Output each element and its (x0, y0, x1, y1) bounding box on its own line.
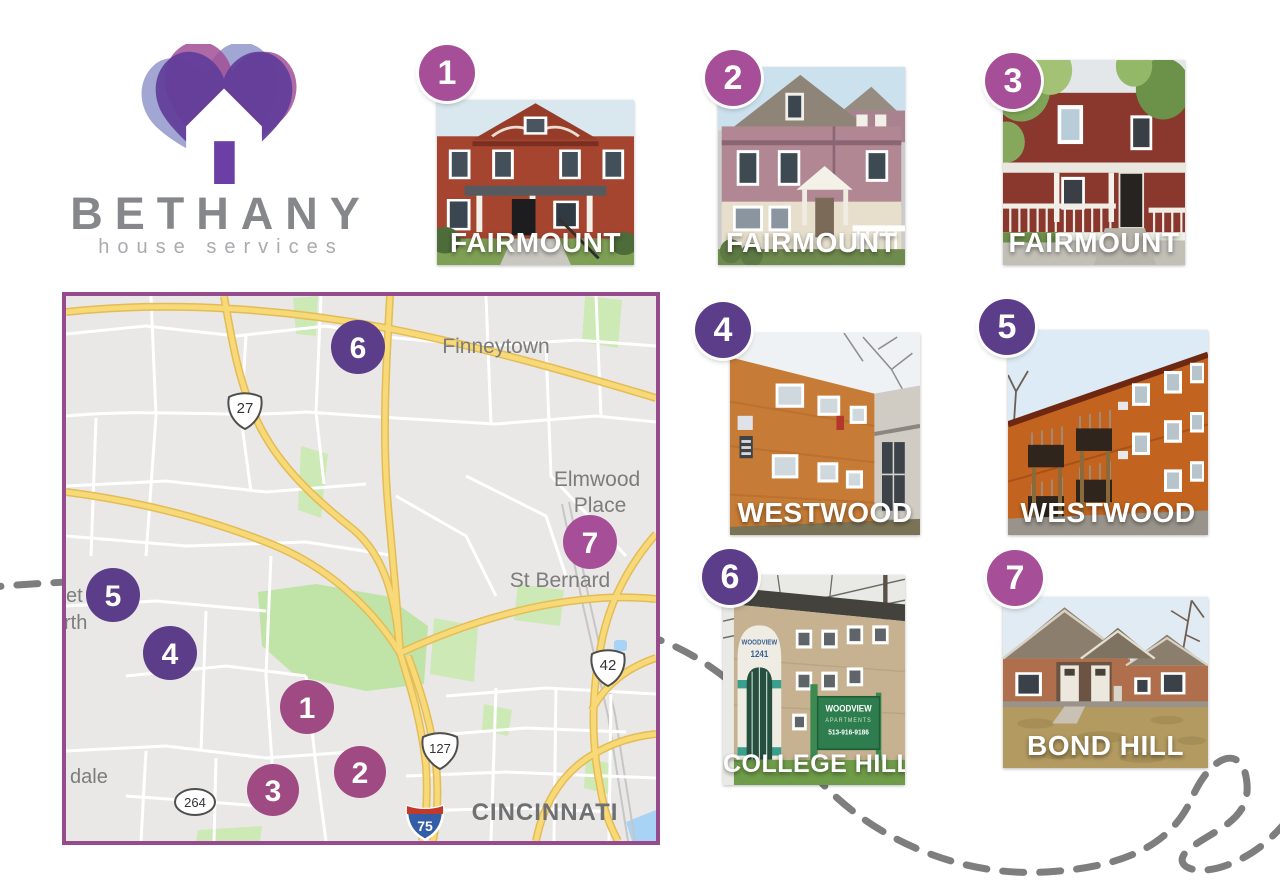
photo-4-neighborhood-label: WESTWOOD (730, 497, 920, 529)
map-marker-2: 2 (334, 746, 386, 798)
map-marker-6: 6 (331, 320, 385, 374)
photo-6-arch-number: 1241 (751, 648, 769, 659)
map-label-cincinnati: CINCINNATI (472, 799, 619, 826)
map-label-clipped-1: et (66, 585, 83, 607)
svg-text:75: 75 (417, 818, 433, 834)
route-shield-sr264: 264 (175, 789, 215, 815)
photo-7-number-badge: 7 (987, 550, 1043, 606)
svg-text:7: 7 (582, 527, 599, 560)
photo-7-neighborhood-label: BOND HILL (1003, 730, 1208, 762)
map-marker-5: 5 (86, 568, 140, 622)
svg-text:127: 127 (429, 741, 451, 756)
photo-6-sign-line2: APARTMENTS (825, 718, 871, 724)
photo-2-neighborhood-label: FAIRMOUNT (718, 227, 905, 259)
svg-text:42: 42 (600, 657, 617, 674)
map-label-finneytown: Finneytown (442, 335, 549, 358)
photo-1-number-badge: 1 (419, 45, 475, 101)
property-photo-1: FAIRMOUNT (437, 100, 634, 265)
photo-3-number-badge: 3 (985, 53, 1041, 109)
map-graphic: Finneytown Elmwood Place St Bernard CINC… (66, 296, 656, 841)
property-photo-6: WOODVIEW 1241 WOODVIEW APARTMENTS 513-91… (723, 575, 905, 785)
photo-6-sign-line1: WOODVIEW (825, 703, 872, 714)
svg-text:3: 3 (265, 775, 282, 808)
photo-2-number-badge: 2 (705, 50, 761, 106)
bethany-heart-house-logo (138, 44, 310, 184)
map-marker-7: 7 (563, 515, 617, 569)
property-photo-7: BOND HILL (1003, 597, 1208, 768)
photo-6-number-badge: 6 (702, 549, 758, 605)
svg-text:2: 2 (352, 757, 369, 790)
map-label-elmwood-place: Place (574, 494, 627, 517)
property-photo-4: WESTWOOD (730, 333, 920, 535)
map-label-clipped-2: rth (66, 612, 87, 634)
map-label-clipped-3: dale (70, 766, 108, 788)
svg-text:264: 264 (184, 795, 206, 810)
photo-3-neighborhood-label: FAIRMOUNT (1003, 227, 1185, 259)
photo-1-neighborhood-label: FAIRMOUNT (437, 227, 634, 259)
photo-6-arch-name: WOODVIEW (742, 639, 778, 646)
svg-text:1: 1 (299, 692, 316, 725)
cincinnati-neighborhood-map: Finneytown Elmwood Place St Bernard CINC… (62, 292, 660, 845)
map-marker-1: 1 (280, 680, 334, 734)
bethany-housing-infographic: BETHANY house services (0, 0, 1280, 886)
map-label-elmwood: Elmwood (554, 468, 640, 491)
photo-5-neighborhood-label: WESTWOOD (1008, 497, 1208, 529)
map-marker-4: 4 (143, 626, 197, 680)
property-photo-5: WESTWOOD (1008, 330, 1208, 535)
photo-6-sign-line3: 513-916-9186 (828, 729, 869, 736)
svg-text:4: 4 (162, 638, 179, 671)
route-shield-i75: 75 (405, 806, 445, 840)
photo-6-neighborhood-label: COLLEGE HILL (723, 750, 905, 779)
map-label-st-bernard: St Bernard (510, 569, 610, 592)
svg-text:27: 27 (237, 400, 254, 417)
map-marker-3: 3 (247, 764, 299, 816)
svg-text:5: 5 (105, 580, 122, 613)
svg-text:6: 6 (350, 332, 367, 365)
photo-4-number-badge: 4 (695, 302, 751, 358)
photo-5-number-badge: 5 (979, 299, 1035, 355)
